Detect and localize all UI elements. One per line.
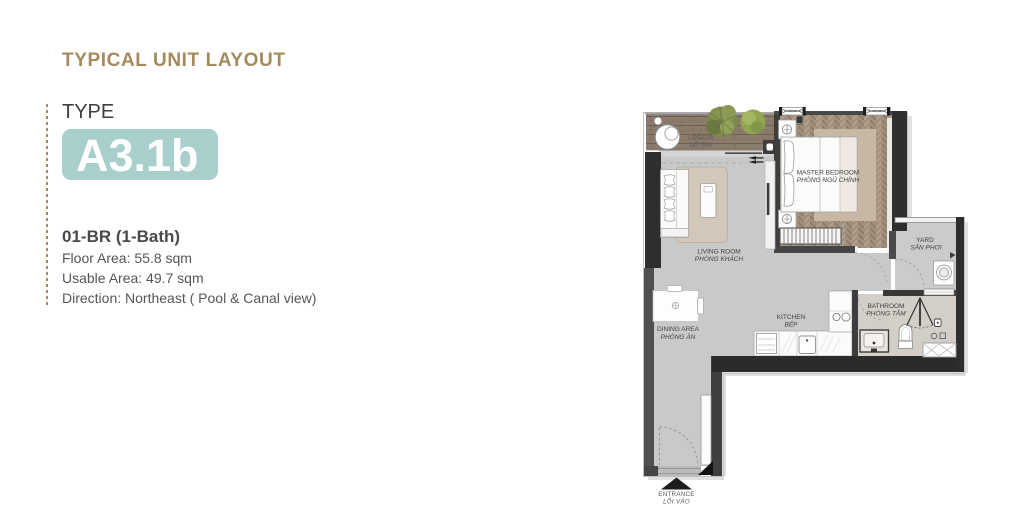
svg-text:DINING AREA: DINING AREA <box>657 326 700 333</box>
svg-text:LOGGIA: LOGGIA <box>688 136 713 142</box>
svg-text:SÂN PHƠI: SÂN PHƠI <box>910 243 941 252</box>
svg-text:LIVING ROOM: LIVING ROOM <box>697 249 740 256</box>
svg-text:BATHROOM: BATHROOM <box>867 303 904 310</box>
svg-text:LỐI VÀO: LỐI VÀO <box>663 499 690 506</box>
svg-text:BẾP: BẾP <box>784 320 798 329</box>
svg-text:ENTRANCE: ENTRANCE <box>658 491 694 498</box>
svg-text:MASTER BEDROOM: MASTER BEDROOM <box>797 170 859 177</box>
svg-text:YARD: YARD <box>916 237 934 244</box>
svg-text:KITCHEN: KITCHEN <box>777 314 806 321</box>
svg-text:PHÒNG KHÁCH: PHÒNG KHÁCH <box>695 254 744 263</box>
svg-text:PHÒNG NGỦ CHÍNH: PHÒNG NGỦ CHÍNH <box>797 175 860 184</box>
svg-text:PHÒNG ĂN: PHÒNG ĂN <box>661 332 696 341</box>
svg-text:LÔ GIA: LÔ GIA <box>690 142 712 149</box>
svg-text:PHÒNG TẮM: PHÒNG TẮM <box>866 309 906 318</box>
